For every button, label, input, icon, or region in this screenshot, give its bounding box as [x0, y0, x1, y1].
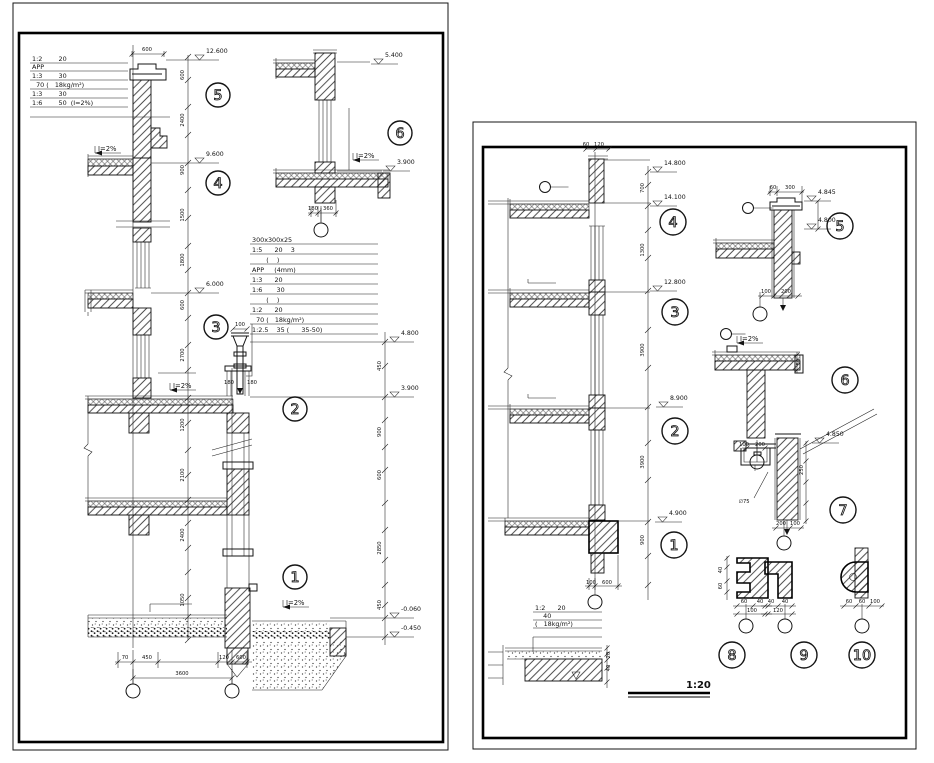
dim-text: 3600 — [175, 671, 188, 677]
cad-drawing: 1:2 20 APP 1:3 30 70 ( 18kg/m²) 1:3 30 1… — [0, 0, 934, 763]
dim-text: 100 — [790, 521, 800, 527]
layer-row: 1:3 30 — [32, 72, 67, 80]
dim-text: 600 — [180, 300, 186, 310]
grid-bubble — [739, 619, 753, 633]
detail-number: 4 — [213, 176, 222, 192]
elevation-value: 5.400 — [385, 52, 403, 59]
left-slab-3 — [84, 373, 249, 498]
dim-text: 50 — [796, 359, 802, 366]
elevation-value: 3.900 — [401, 385, 419, 392]
elevation-value: 12.600 — [206, 48, 228, 55]
grid-bubble — [753, 307, 767, 321]
detail-number: 4 — [668, 215, 677, 231]
dim-text: 180 — [247, 380, 257, 386]
right-mini-detail: 1:2 20 40 ( 18kg/m²) — [488, 604, 610, 688]
detail-number: 7 — [838, 503, 847, 519]
elevation-triangle — [653, 167, 662, 172]
elevation-triangle — [390, 613, 399, 618]
dim-text: ∅75 — [738, 499, 749, 505]
dim-text: 100 — [586, 580, 596, 586]
dim-text: 40 — [606, 665, 612, 672]
dim-text: 900 — [180, 165, 186, 175]
elevation-value: -0.450 — [401, 625, 421, 632]
leader-tag-circle — [721, 329, 732, 340]
grid-bubble — [126, 684, 140, 698]
layer-row: APP — [32, 63, 44, 71]
dim-text: 600 — [602, 580, 612, 586]
dim-text: 60 — [583, 142, 590, 148]
scale-label: 1:20 — [686, 680, 711, 691]
dim-text: 100 — [870, 599, 880, 605]
dim-text: 180 — [308, 206, 318, 212]
dim-text: 100 — [739, 442, 749, 448]
left-detail-6 — [273, 50, 390, 217]
layer-row: 1:2 20 — [252, 306, 283, 314]
detail-number: 10 — [853, 648, 871, 664]
grid-bubble — [778, 619, 792, 633]
dim-text: 40 — [757, 599, 764, 605]
elevation-value: -0.060 — [401, 606, 421, 613]
dim-text: 1200 — [180, 418, 186, 431]
cad-canvas: 1:2 20 APP 1:3 30 70 ( 18kg/m²) 1:3 30 1… — [0, 0, 934, 763]
left-level-connectors — [151, 60, 387, 637]
dim-text: 2400 — [180, 528, 186, 541]
grid-bubble — [855, 619, 869, 633]
left-layer-table-mid: 300x300x25 1:5 20 3 ( ) APP (4mm) 1:3 20… — [250, 236, 378, 334]
dim-text: 2700 — [180, 348, 186, 361]
elevation-triangle — [195, 158, 204, 163]
dim-text: 180 — [224, 380, 234, 386]
dim-text: 120 — [594, 142, 604, 148]
detail-number: 8 — [727, 648, 736, 664]
dim-text: 450 — [142, 655, 152, 661]
elevation-triangle — [653, 201, 662, 206]
layer-row: 70 ( 18kg/m²) — [32, 81, 84, 89]
right-sheet-frame — [483, 147, 906, 738]
detail-number: 6 — [840, 373, 849, 389]
layer-row: 1:5 20 3 — [252, 246, 295, 254]
dim-text: 200 — [755, 442, 765, 448]
dim-text: 200 — [781, 289, 791, 295]
elevation-triangle — [653, 286, 662, 291]
dim-text: 60 — [846, 599, 853, 605]
elevation-value: 6.000 — [206, 281, 224, 288]
dim-text: 450 — [377, 361, 383, 371]
grid-bubble — [225, 684, 239, 698]
dim-text: 1300 — [640, 243, 646, 256]
dim-text: 600 — [377, 470, 383, 480]
elevation-value: 9.600 — [206, 151, 224, 158]
grid-bubble — [588, 595, 602, 609]
elevation-triangle — [659, 402, 668, 407]
detail-number: 6 — [395, 126, 404, 142]
left-slab-4 — [85, 290, 151, 398]
elevation-triangle — [390, 632, 399, 637]
dim-text: 100 — [761, 289, 771, 295]
elevation-triangle — [807, 196, 816, 201]
leader-tag-circle — [540, 182, 551, 193]
elevation-value: 12.800 — [664, 279, 686, 286]
dim-text: 700 — [640, 183, 646, 193]
layer-row: ( 18kg/m²) — [535, 620, 573, 628]
dim-text: 70 — [122, 655, 129, 661]
dim-text: 450 — [377, 600, 383, 610]
detail-number: 1 — [290, 570, 299, 586]
dim-text: 100 — [747, 608, 757, 614]
dim-text: 900 — [377, 427, 383, 437]
dim-text: 100 — [235, 322, 245, 328]
elevation-value: 8.900 — [670, 395, 688, 402]
layer-table-header: 300x300x25 — [252, 236, 292, 244]
elevation-value: 4.800 — [401, 330, 419, 337]
elevation-triangle — [807, 224, 816, 229]
leader-tag-circle — [743, 203, 754, 214]
dim-text: 300 — [785, 185, 795, 191]
dim-text: 120 — [219, 655, 229, 661]
dim-text: 2400 — [180, 113, 186, 126]
elevation-value: 4.845 — [818, 189, 836, 196]
dim-text: 360 — [323, 206, 333, 212]
dim-text: 900 — [640, 535, 646, 545]
dim-text: 2100 — [180, 468, 186, 481]
elevation-triangle — [390, 337, 399, 342]
layer-row: ( ) — [252, 296, 279, 304]
detail-number: 3 — [211, 320, 220, 336]
dim-text: 600 — [142, 47, 152, 53]
elevation-value: 4.900 — [669, 510, 687, 517]
layer-row: APP (4mm) — [252, 266, 296, 274]
elevation-triangle — [195, 55, 204, 60]
dim-text: 600 — [180, 70, 186, 80]
dim-text: 60 — [770, 185, 777, 191]
dim-text: 2850 — [377, 541, 383, 554]
dim-text: 60 — [741, 599, 748, 605]
layer-row: 1:2.5 35 ( 35-50) — [252, 326, 322, 334]
elevation-triangle — [658, 517, 667, 522]
layer-row: 1:3 20 — [252, 276, 283, 284]
dim-text: 3900 — [640, 455, 646, 468]
detail-number: 5 — [835, 219, 844, 235]
detail-number: 5 — [213, 88, 222, 104]
detail-number: 2 — [290, 402, 299, 418]
dim-text: 120 — [773, 608, 783, 614]
detail-number: 3 — [670, 305, 679, 321]
dim-text: 1800 — [180, 253, 186, 266]
dim-text: 3900 — [640, 343, 646, 356]
left-roof-slab — [88, 154, 133, 177]
layer-row: 1:2 20 — [535, 604, 566, 612]
dim-text: 200 — [776, 521, 786, 527]
layer-row: 40 — [535, 612, 551, 620]
dim-text: 1500 — [180, 208, 186, 221]
layer-row: 70 ( 18kg/m²) — [252, 316, 304, 324]
left-upper-wall — [116, 158, 170, 288]
elevation-triangle — [374, 59, 383, 64]
elevation-value: 4.850 — [826, 431, 844, 438]
dim-text: 250 — [799, 465, 805, 475]
dim-text: 600 — [236, 655, 246, 661]
left-ground — [88, 584, 346, 690]
elevation-value: 14.100 — [664, 194, 686, 201]
dim-text: 40 — [718, 567, 724, 574]
detail-number: 9 — [799, 648, 808, 664]
left-sheet: 1:2 20 APP 1:3 30 70 ( 18kg/m²) 1:3 30 1… — [13, 3, 448, 750]
layer-row: 1:6 50 (I=2%) — [32, 99, 93, 107]
layer-row: 1:2 20 — [32, 55, 67, 63]
detail-number: 1 — [669, 538, 678, 554]
left-parapet — [130, 51, 168, 158]
right-main-section — [488, 147, 650, 591]
layer-row: 1:3 30 — [32, 90, 67, 98]
grid-bubble — [314, 223, 328, 237]
elevation-value: 14.800 — [664, 160, 686, 167]
layer-row: 1:6 30 — [252, 286, 285, 294]
right-detail-6 — [712, 346, 803, 451]
elevation-triangle — [195, 288, 204, 293]
left-slab-2 — [85, 498, 227, 535]
grid-bubble — [777, 536, 791, 550]
dim-text: 40 — [768, 599, 775, 605]
dim-text: 1050 — [180, 593, 186, 606]
layer-row: ( ) — [252, 256, 279, 264]
dim-text: 20 — [606, 652, 612, 659]
detail-number: 2 — [670, 424, 679, 440]
dim-text: 60 — [718, 583, 724, 590]
elevation-triangle — [390, 392, 399, 397]
elevation-value: 3.900 — [397, 159, 415, 166]
right-scale-bar: 1:20 — [628, 680, 711, 697]
